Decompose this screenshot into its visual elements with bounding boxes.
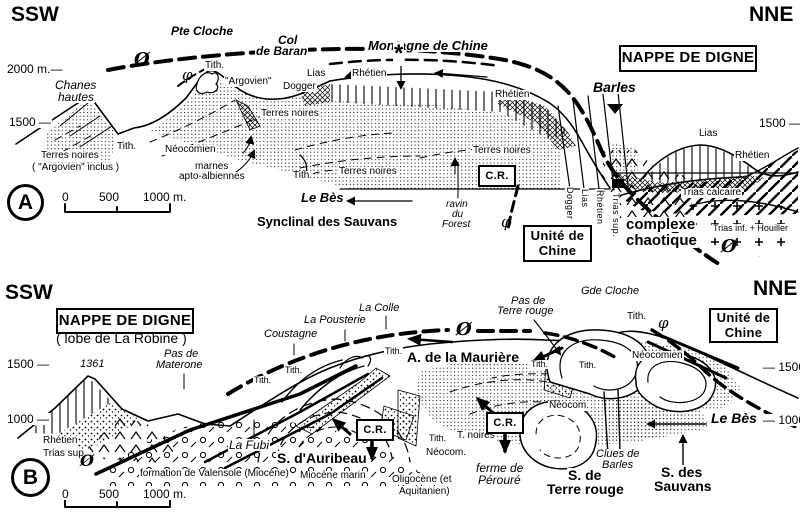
label-apto-albiennes: apto-albiennes [178,172,246,182]
label-argovien: "Argovien" [224,77,273,87]
phi-symbol: φ [657,316,670,331]
phi-symbol: φ [181,68,194,83]
label-s-des: S. des [660,465,703,479]
phi-major-thrust-symbol: Ø [455,321,473,339]
boxed-label-unité-de: Unité deChine [523,225,592,262]
label-formation-de-valensole-miocène: formation de Valensole (Miocène) [139,469,290,479]
boxed-label-line: Unité de [531,229,585,243]
label-argovien-inclus: ( "Argovien" inclus ) [31,163,120,173]
boxed-label-line: Chine [539,244,577,258]
label-tith: Tith. [626,312,647,322]
label-néocom: Néocom. [425,448,467,458]
label-synclinal-des-sauvans: Synclinal des Sauvans [256,215,398,228]
boxed-label-c-r: C.R. [478,165,516,187]
label-forest: Forest [441,220,471,230]
label-tith: Tith. [530,360,549,369]
scalebar-b-500: 500 [98,488,120,500]
compass-ssw-b: SSW [4,282,54,303]
boxed-label-line: C.R. [485,170,508,182]
phi-major-thrust-symbol: Ø [720,238,738,256]
compass-nne-b: NNE [752,278,798,299]
asterisk-marker: * [393,42,404,66]
phi-symbol: φ [500,215,513,230]
label-pérouré: Pérouré [477,474,522,486]
label-tith: Tith. [284,366,303,375]
label-aquitanien: Aquitanien) [398,487,451,497]
label-materone: Materone [155,360,203,371]
label-barles: Barles [601,460,634,471]
boxed-label-nappe-de-digne: NAPPE DE DIGNE [619,45,757,72]
label-dogger: Dogger [565,186,574,221]
label-trias-sup: Trias sup. [611,192,620,238]
label-a-de-la-maurière: A. de la Maurière [406,350,520,364]
elevation-1000-right-b: — 1000 [762,414,800,426]
label-sauvans: Sauvans [653,479,713,493]
label-terre-rouge: Terre rouge [496,306,554,317]
label-le-bès: Le Bès [710,411,758,425]
phi-major-thrust-symbol: Ø [133,51,151,69]
label-pte-cloche: Pte Cloche [170,25,234,37]
label-terres-noires: Terres noires [40,151,100,161]
label-tith: Tith. [292,171,313,181]
label-la-fubi: La Fubi [228,439,270,451]
label-terres-noires: Terres noires [338,167,398,177]
boxed-label-line: C.R. [493,417,516,429]
boxed-label-nappe-de-digne: NAPPE DE DIGNE [56,308,194,334]
boxed-label-line: Chine [725,326,763,340]
label-néocom: Néocom. [548,401,590,411]
label-tith: Tith. [253,376,272,385]
boxed-label-line: NAPPE DE DIGNE [622,50,755,67]
label-tith: Tith. [578,361,597,370]
label-s-d-auribeau: S. d'Auribeau [276,451,368,465]
scalebar-a-1000: 1000 m. [142,191,187,203]
label-chaotique: chaotique [625,233,698,248]
label-s-de: S. de [567,468,602,482]
scalebar-a-0: 0 [61,191,70,203]
label-trias-calcaire: Trias calcaire [681,188,742,198]
boxed-label-line: C.R. [363,424,386,436]
pas-de-terre-rouge-arrow [534,320,560,354]
label-barles: Barles [592,80,637,94]
elevation-1500-right-a: 1500 — [758,117,800,129]
label-néocomien: Néocomien [631,351,684,361]
boxed-label-unité-de: Unité deChine [709,308,778,343]
scalebar-a-500: 500 [98,191,120,203]
label-rhétien: Rhétien [42,436,78,446]
label-rhétien: Rhétien [595,189,604,226]
scalebar-b-0: 0 [61,488,70,500]
label-coustagne: Coustagne [263,329,318,340]
label-lias: Lias [306,69,326,79]
label-trias-inf-houiller: Trias inf. + Houiller [712,224,789,233]
label-terres-noires: Terres noires [472,146,532,156]
elevation-1500-left-a: 1500 — [8,116,52,128]
panel-marker-a: A [7,184,44,221]
geological-cross-section-figure: SSWNNEPte ClocheColde BaranMontagne de C… [0,0,800,518]
label-le-bès: Le Bès [300,191,345,204]
label-hautes: hautes [57,91,95,103]
compass-nne-a: NNE [748,4,794,25]
label-tith: Tith. [384,347,403,356]
scale-bar-a [65,204,170,212]
label-la-pousterie: La Pousterie [303,315,367,326]
cross-sections-line-art [0,0,800,518]
label-rhétien: Rhétien [351,69,387,79]
spot-height-1361: 1361 [79,359,105,370]
label-montagne-de-chine: Montagne de Chine [367,39,489,52]
boxed-label-c-r: C.R. [486,412,524,434]
elevation-1000-left-b: 1000 — [6,413,50,425]
elevation-1500-right-b: — 1500 [762,361,800,373]
panel-marker-b: B [11,458,50,497]
label-tith: Tith. [428,434,447,443]
boxed-label-line: NAPPE DE DIGNE [59,313,192,330]
label-lias: Lias [580,188,589,209]
label-terre-rouge: Terre rouge [546,482,625,496]
label-lias: Lias [698,129,718,139]
label-miocène-marin: Miocène marin [299,471,367,481]
boxed-label-line: Unité de [717,311,771,325]
elevation-1500-left-b: 1500 — [6,358,50,370]
phi-major-thrust-symbol: Ø [79,453,95,469]
label-complexe: complexe [625,217,696,232]
label-de-baran: de Baran [255,45,308,57]
label-la-colle: La Colle [358,303,400,314]
label-tith: Tith. [116,142,137,152]
compass-ssw-a: SSW [10,4,60,25]
label-dogger: Dogger [282,82,317,92]
scalebar-b-1000: 1000 m. [142,488,187,500]
label-néocomien: Néocomien [164,145,217,155]
label-gde-cloche: Gde Cloche [580,286,640,297]
terre-rouge-syncline [520,401,597,469]
boxed-label-c-r: C.R. [356,419,394,441]
elevation-2000-left-a: 2000 m.— [6,63,63,75]
label-oligocène-et: Oligocène (et [391,475,452,485]
label-rhétien: Rhétien [494,90,530,100]
label-rhétien: Rhétien [734,151,770,161]
label-terres-noires: Terres noires [260,109,320,119]
label-tith: Tith. [204,61,225,71]
